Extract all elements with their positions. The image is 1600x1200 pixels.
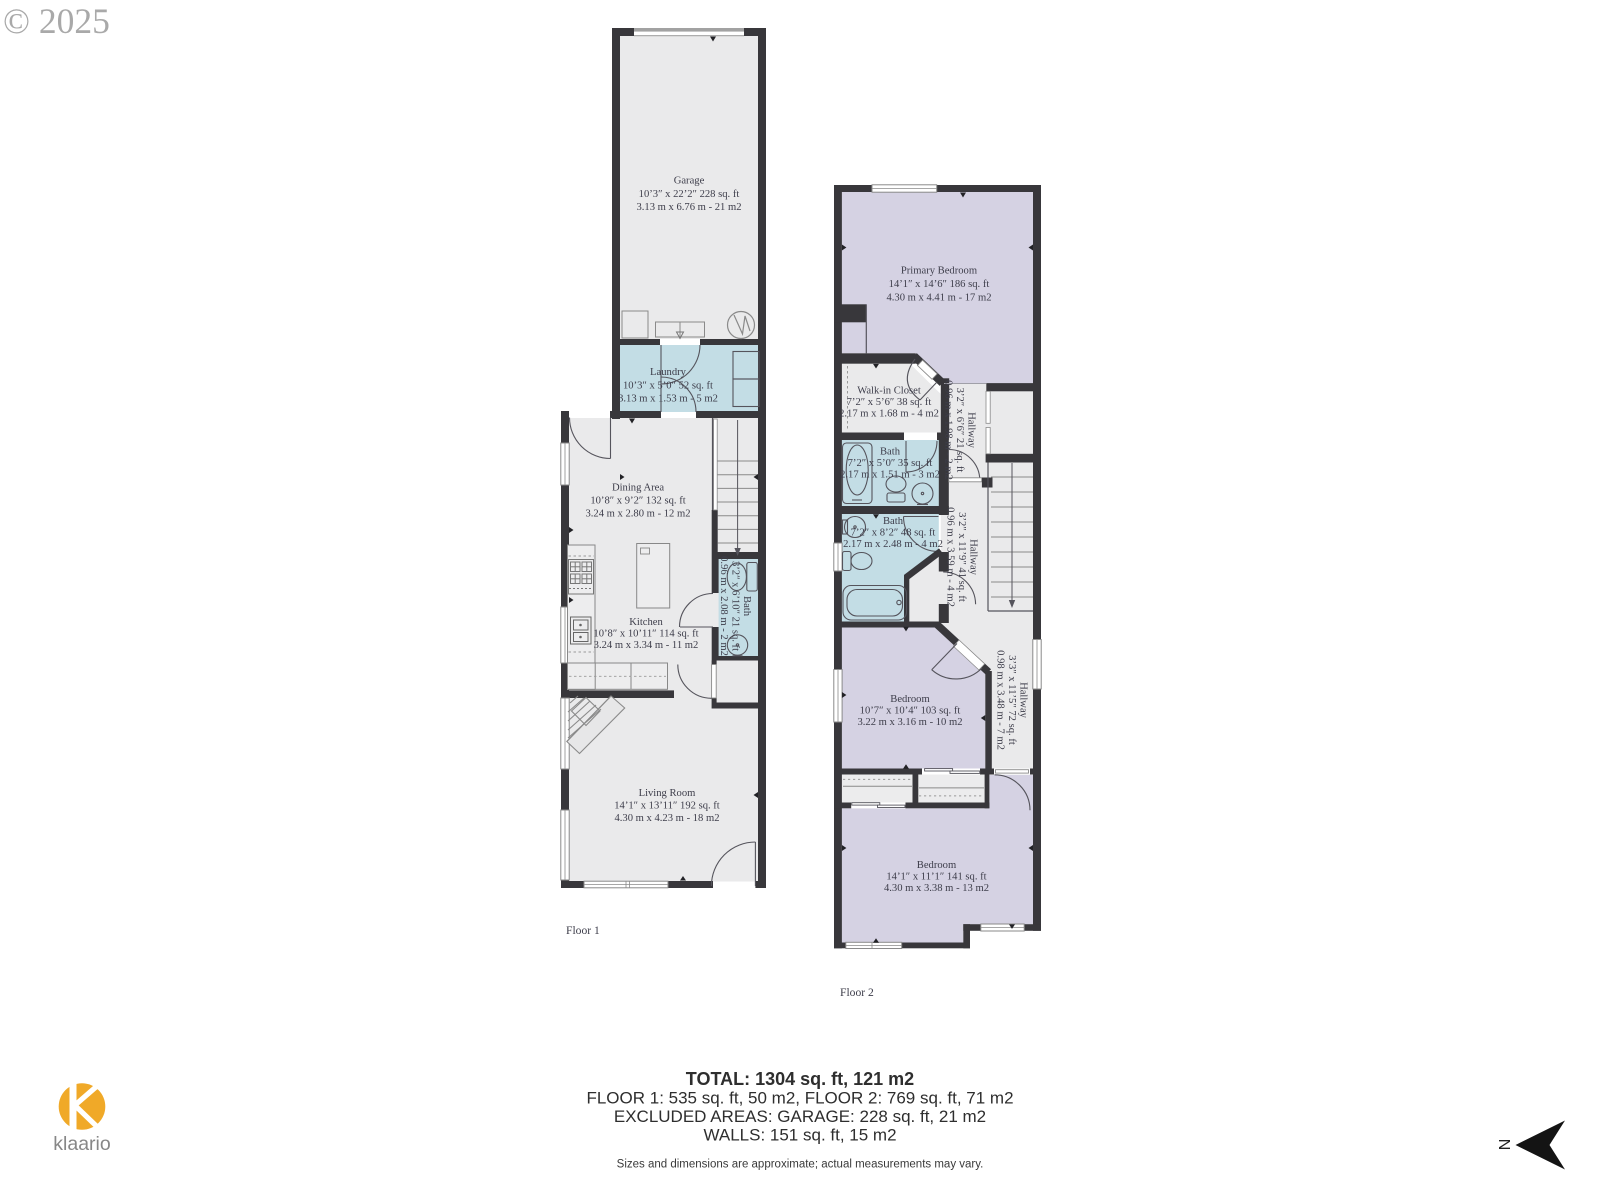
- svg-text:© 2025: © 2025: [3, 1, 110, 41]
- svg-text:4.30 m x 3.38 m - 13 m2: 4.30 m x 3.38 m - 13 m2: [884, 883, 989, 894]
- svg-text:10’7″ x 10’4″ 103 sq. ft: 10’7″ x 10’4″ 103 sq. ft: [860, 706, 961, 717]
- svg-text:0.98 m x 3.48 m - 7 m2: 0.98 m x 3.48 m - 7 m2: [995, 650, 1006, 750]
- svg-text:Kitchen: Kitchen: [629, 617, 663, 628]
- svg-text:14’1″ x 14’6″ 186 sq. ft: 14’1″ x 14’6″ 186 sq. ft: [889, 279, 990, 290]
- svg-text:Hallway: Hallway: [1018, 682, 1029, 719]
- svg-text:10’3″ x 22’2″ 228 sq. ft: 10’3″ x 22’2″ 228 sq. ft: [639, 189, 740, 200]
- svg-text:Bedroom: Bedroom: [917, 860, 957, 871]
- svg-text:2.17 m x 1.68 m - 4 m2: 2.17 m x 1.68 m - 4 m2: [839, 409, 939, 420]
- svg-text:3’3″ x 11’5″ 72 sq. ft: 3’3″ x 11’5″ 72 sq. ft: [1006, 655, 1017, 745]
- svg-text:4.30 m x 4.23 m - 18 m2: 4.30 m x 4.23 m - 18 m2: [614, 813, 719, 824]
- svg-text:Garage: Garage: [674, 176, 705, 187]
- svg-text:3’2″ x 11’9″ 41 sq. ft: 3’2″ x 11’9″ 41 sq. ft: [956, 512, 967, 602]
- svg-text:3’2″ x 6’10″ 21 sq. ft: 3’2″ x 6’10″ 21 sq. ft: [730, 561, 741, 651]
- svg-text:3.22 m x 3.16 m - 10 m2: 3.22 m x 3.16 m - 10 m2: [857, 717, 962, 728]
- svg-text:FLOOR 1: 535 sq. ft, 50 m2, FL: FLOOR 1: 535 sq. ft, 50 m2, FLOOR 2: 769…: [586, 1089, 1013, 1108]
- svg-text:14’1″ x 13’11″ 192 sq. ft: 14’1″ x 13’11″ 192 sq. ft: [614, 801, 720, 812]
- svg-text:3’2″ x 6’6″ 21 sq. ft: 3’2″ x 6’6″ 21 sq. ft: [954, 388, 965, 473]
- svg-text:Dining Area: Dining Area: [612, 483, 664, 494]
- svg-text:3.13 m x 6.76 m - 21 m2: 3.13 m x 6.76 m - 21 m2: [636, 202, 741, 213]
- svg-text:10’3″ x 5’0″ 52 sq. ft: 10’3″ x 5’0″ 52 sq. ft: [623, 380, 713, 391]
- svg-text:Laundry: Laundry: [650, 367, 687, 378]
- svg-text:2.17 m x 1.51 m - 3 m2: 2.17 m x 1.51 m - 3 m2: [840, 470, 940, 481]
- svg-text:Walk-in Closet: Walk-in Closet: [857, 386, 921, 397]
- svg-text:4.30 m x 4.41 m - 17 m2: 4.30 m x 4.41 m - 17 m2: [886, 293, 991, 304]
- svg-text:Bath: Bath: [741, 596, 752, 617]
- svg-text:3.24 m x 2.80 m - 12 m2: 3.24 m x 2.80 m - 12 m2: [585, 509, 690, 520]
- svg-text:0.96 m x 2.08 m - 2 m2: 0.96 m x 2.08 m - 2 m2: [718, 556, 729, 656]
- svg-text:Floor 2: Floor 2: [840, 986, 874, 999]
- svg-text:0.96 m x 1.98 m - 2 m2: 0.96 m x 1.98 m - 2 m2: [943, 380, 954, 480]
- svg-text:3.13 m x 1.53 m - 5 m2: 3.13 m x 1.53 m - 5 m2: [618, 394, 718, 405]
- svg-text:2.17 m x 2.48 m - 4 m2: 2.17 m x 2.48 m - 4 m2: [843, 539, 943, 550]
- svg-text:Hallway: Hallway: [968, 539, 979, 576]
- svg-text:TOTAL: 1304 sq. ft, 121 m2: TOTAL: 1304 sq. ft, 121 m2: [686, 1069, 914, 1089]
- svg-text:Floor 1: Floor 1: [566, 924, 600, 937]
- svg-text:3.24 m x 3.34 m - 11 m2: 3.24 m x 3.34 m - 11 m2: [594, 640, 699, 651]
- svg-text:10’8″ x 10’11″ 114 sq. ft: 10’8″ x 10’11″ 114 sq. ft: [593, 629, 698, 640]
- svg-text:Sizes and dimensions are appro: Sizes and dimensions are approximate; ac…: [617, 1159, 984, 1171]
- svg-text:Bath: Bath: [883, 516, 904, 527]
- svg-text:WALLS: 151 sq. ft, 15 m2: WALLS: 151 sq. ft, 15 m2: [703, 1126, 896, 1145]
- svg-text:Hallway: Hallway: [966, 412, 977, 449]
- svg-text:Bedroom: Bedroom: [890, 694, 930, 705]
- svg-text:10’8″ x 9’2″ 132 sq. ft: 10’8″ x 9’2″ 132 sq. ft: [590, 496, 685, 507]
- svg-text:7’2″ x 8’2″ 48 sq. ft: 7’2″ x 8’2″ 48 sq. ft: [851, 528, 936, 539]
- svg-text:EXCLUDED AREAS: GARAGE: 228 sq: EXCLUDED AREAS: GARAGE: 228 sq. ft, 21 m…: [614, 1107, 986, 1126]
- svg-text:Bath: Bath: [880, 447, 901, 458]
- svg-text:7’2″ x 5’6″ 38 sq. ft: 7’2″ x 5’6″ 38 sq. ft: [847, 397, 932, 408]
- svg-text:14’1″ x 11’1″ 141 sq. ft: 14’1″ x 11’1″ 141 sq. ft: [886, 872, 986, 883]
- svg-text:klaario: klaario: [53, 1133, 111, 1155]
- svg-text:7’2″ x 5’0″ 35 sq. ft: 7’2″ x 5’0″ 35 sq. ft: [848, 458, 933, 469]
- svg-text:0.96 m x 3.59 m - 4 m2: 0.96 m x 3.59 m - 4 m2: [945, 507, 956, 607]
- svg-text:Primary Bedroom: Primary Bedroom: [901, 266, 978, 277]
- svg-text:N: N: [1497, 1139, 1514, 1151]
- svg-text:Living Room: Living Room: [639, 788, 697, 799]
